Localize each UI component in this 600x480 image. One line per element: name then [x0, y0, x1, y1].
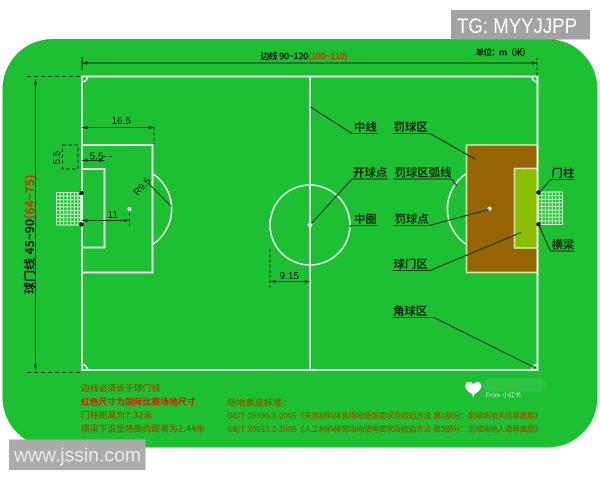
- svg-text:11: 11: [108, 210, 119, 221]
- svg-text:www.jssin.com: www.jssin.com: [13, 445, 141, 467]
- svg-text:16.5: 16.5: [112, 116, 132, 127]
- svg-text:5.5: 5.5: [90, 151, 104, 162]
- svg-text:9.15: 9.15: [280, 271, 300, 282]
- svg-text:5.5: 5.5: [52, 150, 63, 164]
- svg-text:TG: MYYJJPP: TG: MYYJJPP: [457, 14, 577, 38]
